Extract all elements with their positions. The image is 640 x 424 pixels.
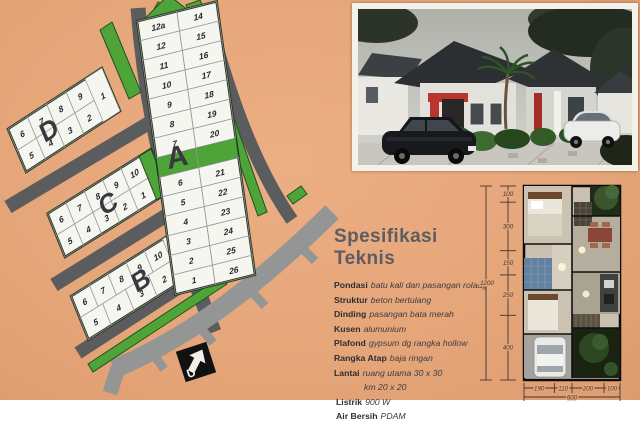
spec-label: Kusen — [334, 324, 361, 334]
house-photo — [358, 9, 632, 165]
spec-label: Pondasi — [334, 280, 368, 290]
dimension-label: 600 — [567, 395, 578, 402]
spec-item: Dindingpasangan bata merah — [334, 307, 494, 322]
lot-number: 11 — [159, 59, 169, 71]
dimension-label: 100 — [607, 386, 618, 393]
green-strip — [287, 186, 307, 204]
spec-item: Listrik900 W — [334, 395, 494, 410]
brochure-page: 678954321D 67891054321C 67891054321B 12a… — [0, 0, 640, 400]
dimension-label: 200 — [582, 386, 594, 393]
spec-value: km 20 x 20 — [364, 382, 407, 392]
spec-item: Plafondgypsum dg rangka hollow — [334, 336, 494, 351]
dimension-label: 150 — [503, 260, 514, 267]
dimension-label: 300 — [503, 223, 514, 230]
dimension-label: 190 — [534, 386, 545, 393]
spec-label: Listrik — [336, 397, 362, 407]
spec-item: Strukturbeton bertulang — [334, 293, 494, 308]
north-arrow-icon: U — [176, 342, 217, 383]
floor-plan: 1003001502504001200190110200100600 — [478, 172, 640, 402]
spec-value: ruang utama 30 x 30 — [363, 368, 443, 378]
spec-label: Plafond — [334, 338, 366, 348]
spec-label: Struktur — [334, 295, 368, 305]
spec-label: Dinding — [334, 309, 366, 319]
spec-item: Kusenalumunium — [334, 322, 494, 337]
main-road-stub — [110, 368, 118, 393]
spec-label: Air Bersih — [336, 411, 378, 421]
spec-section: Spesifikasi Teknis Pondasibatu kali dan … — [334, 226, 494, 424]
spec-value: PDAM — [381, 411, 406, 421]
site-plan-map: 678954321D 67891054321C 67891054321B 12a… — [0, 0, 340, 400]
spec-label: Rangka Atap — [334, 353, 387, 363]
spec-value: gypsum dg rangka hollow — [369, 338, 468, 348]
spec-value: beton bertulang — [371, 295, 431, 305]
dining-table — [588, 228, 612, 242]
dimension-label: 250 — [502, 292, 514, 299]
spec-title: Spesifikasi Teknis — [334, 226, 494, 270]
floor-plan-rooms — [524, 185, 620, 380]
spec-item: Rangka Atapbaja ringan — [334, 351, 494, 366]
main-road-stub — [301, 247, 315, 261]
spec-item-continuation: km 20 x 20 — [334, 380, 494, 395]
spec-value: 900 W — [365, 397, 390, 407]
spec-item: Pondasibatu kali dan pasangan rolaag — [334, 278, 494, 293]
house-photo-frame — [352, 3, 638, 171]
dimension-label: 110 — [558, 386, 568, 393]
block-letter: A — [164, 138, 190, 176]
dimension-label: 100 — [503, 191, 514, 198]
spec-item: Air BersihPDAM — [334, 409, 494, 424]
spec-value: alumunium — [364, 324, 407, 334]
dimension-label: 400 — [503, 345, 514, 352]
main-road-stub — [251, 291, 265, 306]
spec-label: Lantai — [334, 368, 360, 378]
spec-item: Lantairuang utama 30 x 30 — [334, 366, 494, 381]
spec-value: pasangan bata merah — [369, 309, 454, 319]
spec-value: batu kali dan pasangan rolaag — [371, 280, 487, 290]
dimension-label: 1200 — [480, 280, 494, 287]
spec-value: baja ringan — [390, 353, 433, 363]
